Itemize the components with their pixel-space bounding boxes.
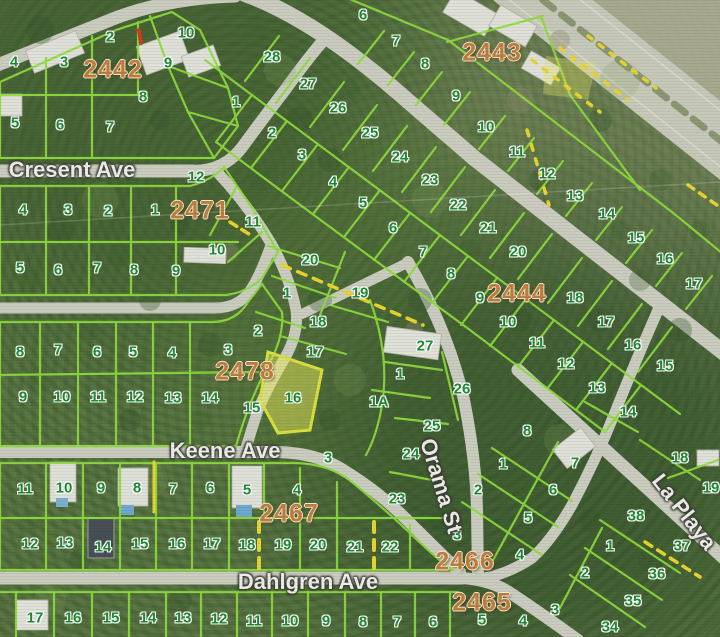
tree-texture — [18, 16, 711, 621]
map-graphics — [0, 0, 720, 637]
red-survey-tick — [139, 30, 141, 43]
map-root[interactable]: 2104398567678910111213141516172827262524… — [0, 0, 720, 637]
highlighted-parcel-16[interactable] — [260, 352, 322, 433]
yellow-tinted-parcel — [543, 56, 596, 100]
